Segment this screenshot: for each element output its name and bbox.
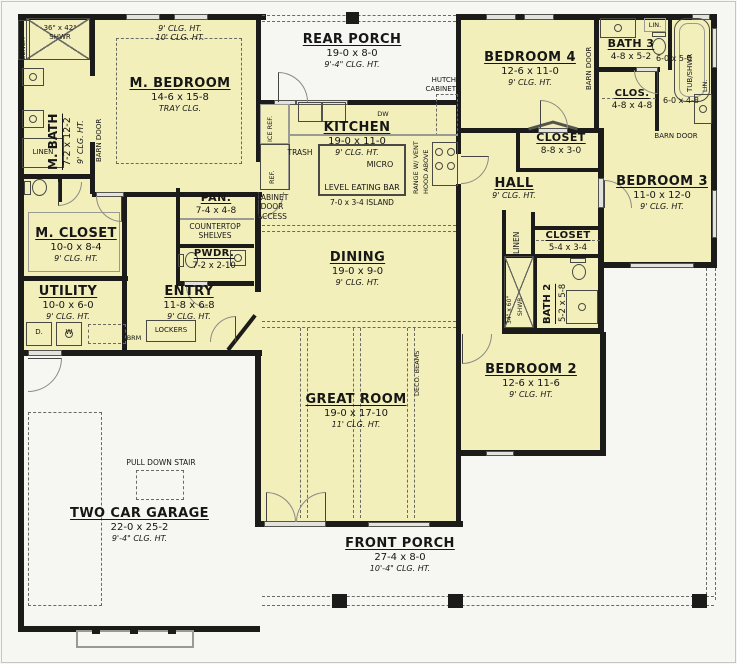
room-label-rear-porch: REAR PORCH 19-0 x 8-0 9'-4" CLG. HT. (272, 32, 432, 70)
hutch-cabinet-box (436, 94, 458, 136)
closet-2-dims: 5-4 x 3-4 (534, 243, 602, 253)
front-porch-name: FRONT PORCH (330, 536, 470, 551)
bath-2-dims: 5-2 x 5-8 (558, 264, 568, 322)
wall (90, 14, 95, 76)
room-label-clos: CLOS. 4-8 x 4-8 (600, 88, 664, 111)
toilet-icon (652, 32, 666, 37)
closet-hall-name: CLOSET (520, 132, 602, 145)
room-label-powder: PWDR. 7-2 x 2-10 (182, 248, 246, 271)
m-bath-dims: 7-2 x 12-2 (62, 68, 73, 166)
tub-shwr-label: TUB/SHWR (686, 28, 694, 92)
bedroom-3-name: BEDROOM 3 (606, 174, 718, 189)
bedroom-3-clg: 9' CLG. HT. (606, 202, 718, 211)
micro-label: MICRO (358, 160, 402, 170)
dw-label: DW (372, 110, 394, 118)
room-label-closet-hall: CLOSET 8-8 x 3-0 (520, 132, 602, 157)
cab-line2: DOOR (246, 202, 298, 211)
bedroom-2-dims: 12-6 x 11-6 (462, 378, 600, 390)
powder-dims: 7-2 x 2-10 (182, 261, 246, 271)
deco-beams-label: DECO. BEAMS (413, 334, 421, 396)
rear-porch-open-edge (262, 15, 456, 22)
bedroom-2-name: BEDROOM 2 (462, 362, 600, 377)
window (524, 14, 554, 20)
tray-ceiling-notes: 9' CLG. HT. 10' CLG. HT. (120, 24, 240, 43)
bath2-shower-word: SHWR (517, 270, 524, 316)
tray-9-label: 9' CLG. HT. (120, 24, 240, 33)
toilet-icon (32, 179, 47, 196)
garage-door-post (92, 628, 100, 634)
linen-label: LINEN (24, 148, 62, 157)
room-label-bedroom-4: BEDROOM 4 12-6 x 11-0 9' CLG. HT. (460, 50, 600, 88)
kitchen-name: KITCHEN (292, 120, 422, 135)
m-bedroom-name: M. BEDROOM (100, 76, 260, 91)
closet-2-name: CLOSET (534, 230, 602, 242)
washer-label: W (59, 328, 79, 337)
room-label-utility: UTILITY 10-0 x 6-0 9' CLG. HT. (26, 284, 110, 322)
bedroom-4-clg: 9' CLG. HT. (460, 78, 600, 87)
window (486, 451, 514, 456)
great-room-name: GREAT ROOM (290, 392, 422, 407)
room-label-closet-2: CLOSET 5-4 x 3-4 (534, 230, 602, 253)
bedroom-3-dims: 11-0 x 12-0 (606, 190, 718, 202)
wall (255, 350, 261, 527)
room-label-front-porch: FRONT PORCH 27-4 x 8-0 10'-4" CLG. HT. (330, 536, 470, 574)
window (712, 28, 717, 68)
toilet-icon (570, 258, 586, 263)
great-room-dims: 19-0 x 17-10 (290, 408, 422, 420)
rear-porch-name: REAR PORCH (272, 32, 432, 47)
ice-ref-cabinet (260, 104, 290, 144)
dining-dims: 19-0 x 9-0 (300, 266, 415, 278)
garage-name: TWO CAR GARAGE (62, 506, 217, 521)
master-shower-word: SHWR (34, 33, 86, 42)
window (368, 522, 430, 527)
room-label-entry: ENTRY 11-8 x 6-8 9' CLG. HT. (146, 284, 232, 322)
wall (18, 276, 128, 281)
floor-plan: M. BATH 7-2 x 12-2 9' CLG. HT. BENCH 36"… (0, 0, 737, 664)
range-label-1: RANGE W/ VENT (412, 102, 420, 194)
hall-clg: 9' CLG. HT. (476, 191, 552, 200)
front-porch-edge (262, 596, 714, 606)
sink (22, 110, 44, 128)
pull-down-stair-label: PULL DOWN STAIR (116, 458, 206, 467)
powder-name: PWDR. (182, 248, 246, 260)
bedroom-4-dims: 12-6 x 11-0 (460, 66, 600, 78)
wall (18, 14, 24, 632)
hutch-cabinet-label: HUTCH CABINET (408, 76, 456, 94)
ice-ref-label: ICE REF. (266, 108, 274, 142)
pantry-shelf-line (180, 218, 254, 220)
bath2-shower-size: 34" x 60" (506, 262, 513, 324)
utility-name: UTILITY (26, 284, 110, 299)
burner (435, 148, 443, 156)
clos-hall-dims: 6-0 x 4-8 (656, 96, 706, 106)
garage-door-post (168, 628, 176, 634)
garage-door-post (130, 628, 138, 634)
room-label-bedroom-3: BEDROOM 3 11-0 x 12-0 9' CLG. HT. (606, 174, 718, 212)
ref-label: REF. (268, 152, 276, 184)
front-porch-dims: 27-4 x 8-0 (330, 552, 470, 564)
m-closet-clg: 9' CLG. HT. (26, 254, 126, 263)
bedroom-4-name: BEDROOM 4 (460, 50, 600, 65)
wall (456, 450, 606, 456)
cabinet-access-label: CABINET DOOR ACCESS (246, 193, 298, 221)
tray-10-label: 10' CLG. HT. (120, 33, 240, 42)
wall (456, 184, 461, 334)
porch-post (346, 12, 359, 24)
door-opening (28, 350, 62, 356)
dining-clg: 9' CLG. HT. (300, 278, 415, 287)
window (174, 14, 208, 20)
m-bedroom-dims: 14-6 x 15-8 (100, 92, 260, 104)
toilet-icon (24, 181, 31, 195)
trash-label: TRASH (282, 148, 318, 157)
cab-line3: ACCESS (246, 212, 298, 221)
m-bath-clg: 9' CLG. HT. (76, 72, 85, 164)
hall-name: HALL (476, 176, 552, 191)
wall (502, 328, 604, 334)
bath-3-name: BATH 3 (596, 38, 666, 51)
closet-hall-dims: 8-8 x 3-0 (520, 146, 602, 157)
clos-dims: 4-8 x 4-8 (600, 101, 664, 112)
burner (447, 148, 455, 156)
lin-label-vertical: LIN. (701, 66, 709, 92)
room-label-garage: TWO CAR GARAGE 22-0 x 25-2 9'-4" CLG. HT… (62, 506, 217, 544)
countertop-line2: SHELVES (182, 231, 248, 240)
vanity-sink (600, 18, 636, 38)
side-porch-edge (706, 268, 716, 600)
brm-label: BRM (122, 334, 146, 342)
wall (18, 174, 92, 179)
entry-name: ENTRY (146, 284, 232, 299)
pantry-name: PAN. (186, 192, 246, 205)
dining-name: DINING (300, 250, 415, 265)
window (486, 14, 516, 20)
porch-post (692, 594, 707, 608)
room-label-great-room: GREAT ROOM 19-0 x 17-10 11' CLG. HT. (290, 392, 422, 430)
barn-door-label: BARN DOOR (648, 132, 704, 141)
cab-line1: CABINET (246, 193, 298, 202)
lockers-label: LOCKERS (148, 326, 194, 335)
linen-label-vertical: LINEN (512, 216, 521, 254)
bath-2-name: BATH 2 (542, 262, 553, 324)
room-label-m-closet: M. CLOSET 10-0 x 8-4 9' CLG. HT. (26, 226, 126, 264)
sink-divider (321, 103, 323, 121)
lin-label: LIN. (644, 21, 666, 29)
range-label-2: HOOD ABOVE (422, 102, 430, 194)
garage-clg: 9'-4" CLG. HT. (62, 534, 217, 543)
rear-porch-clg: 9'-4" CLG. HT. (272, 60, 432, 69)
room-label-pantry: PAN. 7-4 x 4-8 (186, 192, 246, 217)
toilet-icon (572, 264, 586, 280)
entry-clg: 9' CLG. HT. (146, 312, 232, 321)
kitchen-dims: 19-0 x 11-0 (292, 136, 422, 148)
wall (600, 332, 606, 456)
window (630, 263, 694, 268)
wall (516, 168, 604, 172)
burner (447, 162, 455, 170)
wall (176, 188, 180, 283)
master-shower-size: 36" x 42" (34, 24, 86, 33)
room-label-hall: HALL 9' CLG. HT. (476, 176, 552, 201)
barn-door-label: BARN DOOR (585, 28, 593, 90)
wall (456, 334, 461, 527)
room-label-m-bedroom: M. BEDROOM 14-6 x 15-8 TRAY CLG. (100, 76, 260, 114)
bedroom-2-clg: 9' CLG. HT. (462, 390, 600, 399)
island-label: 7-0 x 3-4 ISLAND (318, 198, 406, 207)
rear-porch-dims: 19-0 x 8-0 (272, 48, 432, 60)
countertop-shelves-label: COUNTERTOP SHELVES (182, 222, 248, 241)
master-shower-label: 36" x 42" SHWR (34, 24, 86, 42)
entry-dims: 11-8 x 6-8 (146, 300, 232, 312)
bench-label: BENCH (19, 24, 27, 60)
vanity-sink (566, 290, 598, 324)
porch-post (448, 594, 463, 608)
utility-dims: 10-0 x 6-0 (26, 300, 110, 312)
room-label-bedroom-2: BEDROOM 2 12-6 x 11-6 9' CLG. HT. (462, 362, 600, 400)
utility-clg: 9' CLG. HT. (26, 312, 110, 321)
hutch-line1: HUTCH (408, 76, 456, 85)
window (126, 14, 160, 20)
porch-post (332, 594, 347, 608)
sink (22, 68, 44, 86)
burner (435, 162, 443, 170)
dryer-label: D. (29, 328, 49, 337)
kitchen-dining-divider (262, 225, 456, 232)
door-arc (278, 72, 308, 102)
front-porch-clg: 10'-4" CLG. HT. (330, 564, 470, 573)
pantry-dims: 7-4 x 4-8 (186, 206, 246, 217)
pull-down-stair-box (136, 470, 184, 500)
utility-counter (88, 324, 126, 344)
room-label-dining: DINING 19-0 x 9-0 9' CLG. HT. (300, 250, 415, 288)
dining-greatroom-divider (262, 321, 456, 328)
eating-bar-label: LEVEL EATING BAR (320, 183, 404, 193)
hutch-line2: CABINET (408, 85, 456, 94)
m-closet-name: M. CLOSET (26, 226, 126, 241)
countertop-line1: COUNTERTOP (182, 222, 248, 231)
great-room-clg: 11' CLG. HT. (290, 420, 422, 429)
m-bedroom-clg: TRAY CLG. (100, 104, 260, 113)
clos-name: CLOS. (600, 88, 664, 100)
door-arc (28, 358, 62, 392)
m-closet-dims: 10-0 x 8-4 (26, 242, 126, 254)
garage-dims: 22-0 x 25-2 (62, 522, 217, 534)
